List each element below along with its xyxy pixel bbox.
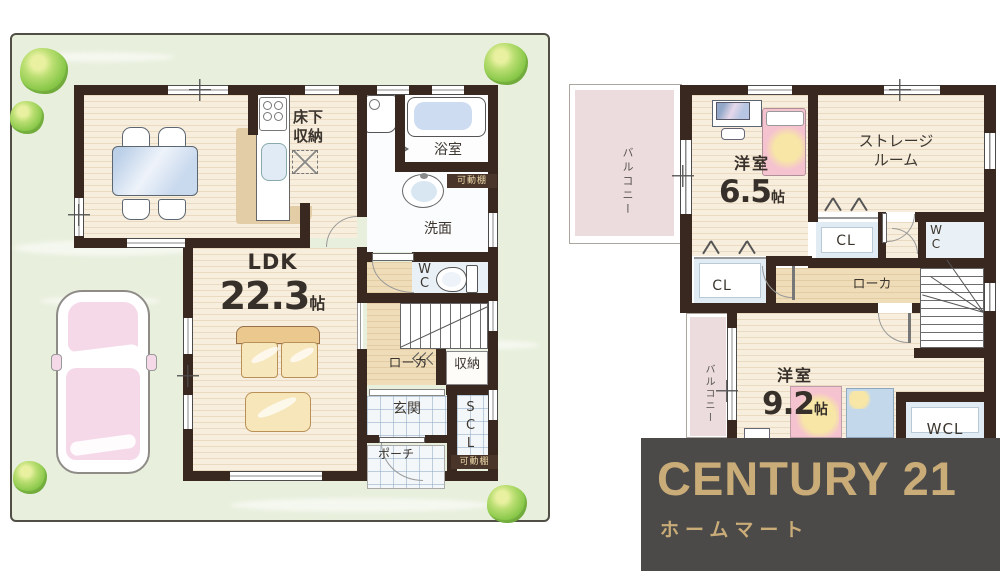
blanket (763, 126, 805, 175)
balcony-bottom-label: バルコニー (692, 348, 714, 440)
fold-door-icon (824, 198, 840, 212)
balcony-floor (690, 317, 726, 436)
dimension-mark (716, 380, 738, 402)
desk-chair (721, 128, 745, 140)
wall (915, 212, 996, 222)
bedroom1-floor (692, 95, 808, 256)
floorplan-image: 床下収納 浴室 可動棚 洗面 WC ローカ 収納 玄関 SCL ポーチ 可動棚 … (0, 0, 1000, 571)
door-arc (892, 228, 918, 254)
balcony-bottom (686, 313, 728, 438)
fold-door-line (816, 212, 878, 222)
walkin-closet-floor (906, 402, 984, 438)
pillow (766, 111, 804, 126)
bedroom1-name: 洋室 (698, 150, 806, 174)
closet-right-floor (816, 222, 878, 258)
bedroom2-name: 洋室 (740, 362, 850, 386)
closet-left-floor (694, 258, 766, 303)
window (748, 85, 792, 95)
site-plan (10, 33, 550, 522)
door-arc (878, 313, 908, 343)
wall (680, 85, 996, 95)
bedroom1-size: 6.5 (719, 174, 771, 210)
door-arc (887, 214, 915, 242)
window (984, 283, 996, 311)
door-leaf (792, 266, 795, 300)
bedroom2-unit: 帖 (814, 402, 828, 418)
window (884, 85, 940, 95)
wall (914, 348, 996, 358)
stairs-winder-line (922, 294, 984, 313)
wall (808, 212, 816, 222)
hallway2-label: ローカ (838, 277, 906, 294)
wall (766, 256, 776, 313)
dimension-mark (889, 79, 911, 101)
brand-name: CENTURY 21 (657, 451, 957, 506)
bed (762, 108, 806, 176)
wall (878, 222, 886, 262)
wc2-label: WC (928, 224, 944, 252)
bed (846, 388, 894, 438)
wall (727, 313, 737, 440)
closet-right-label: CL (826, 233, 866, 251)
wall (896, 392, 996, 402)
door-leaf (908, 313, 911, 343)
window (984, 133, 996, 169)
window (727, 328, 737, 420)
desk (712, 100, 762, 127)
fold-door-line (694, 257, 766, 259)
walkin-closet-label: WCL (908, 420, 982, 439)
wall (918, 222, 926, 268)
fold-door-line (816, 217, 878, 219)
wall (984, 85, 996, 440)
window (680, 140, 692, 214)
bedroom2-floor (737, 313, 984, 438)
wall (808, 258, 996, 268)
wall (878, 212, 886, 222)
balcony-top (569, 84, 682, 244)
wall (808, 85, 818, 222)
wall (680, 85, 692, 313)
brand-banner: CENTURY 21 ホームマート (641, 438, 1000, 571)
wall (766, 256, 812, 266)
balcony-top-label: バルコニー (608, 126, 634, 238)
fold-door-icon (738, 241, 754, 255)
blanket (795, 391, 839, 437)
wc2-floor (926, 222, 984, 258)
monitor (716, 102, 750, 120)
wall (896, 392, 906, 440)
bedroom2-label: 洋室9.2帖 (740, 362, 850, 422)
fold-door-icon (702, 241, 718, 255)
brand-subtitle: ホームマート (660, 515, 809, 542)
stairs-2f (920, 268, 984, 348)
closet-left-label: CL (700, 278, 744, 296)
stairs-winder-line (946, 260, 984, 313)
balcony-floor (575, 90, 674, 236)
bedroom1-label: 洋室6.5帖 (698, 150, 806, 210)
door-arc (762, 266, 792, 298)
vestibule-floor (884, 222, 918, 258)
storage-room-floor (818, 95, 984, 212)
door-leaf (882, 213, 887, 243)
hallway2-floor (776, 268, 920, 303)
wall (912, 303, 926, 313)
pillow (849, 391, 871, 409)
bed (790, 386, 842, 438)
dimension-mark (672, 165, 694, 187)
fold-door-icon (850, 198, 866, 212)
bedroom1-unit: 帖 (771, 190, 785, 206)
storage-room-label: ストレージルーム (856, 132, 936, 170)
bedroom2-size: 9.2 (762, 386, 814, 422)
wall (680, 303, 878, 313)
stairs-winder-line (930, 276, 984, 313)
